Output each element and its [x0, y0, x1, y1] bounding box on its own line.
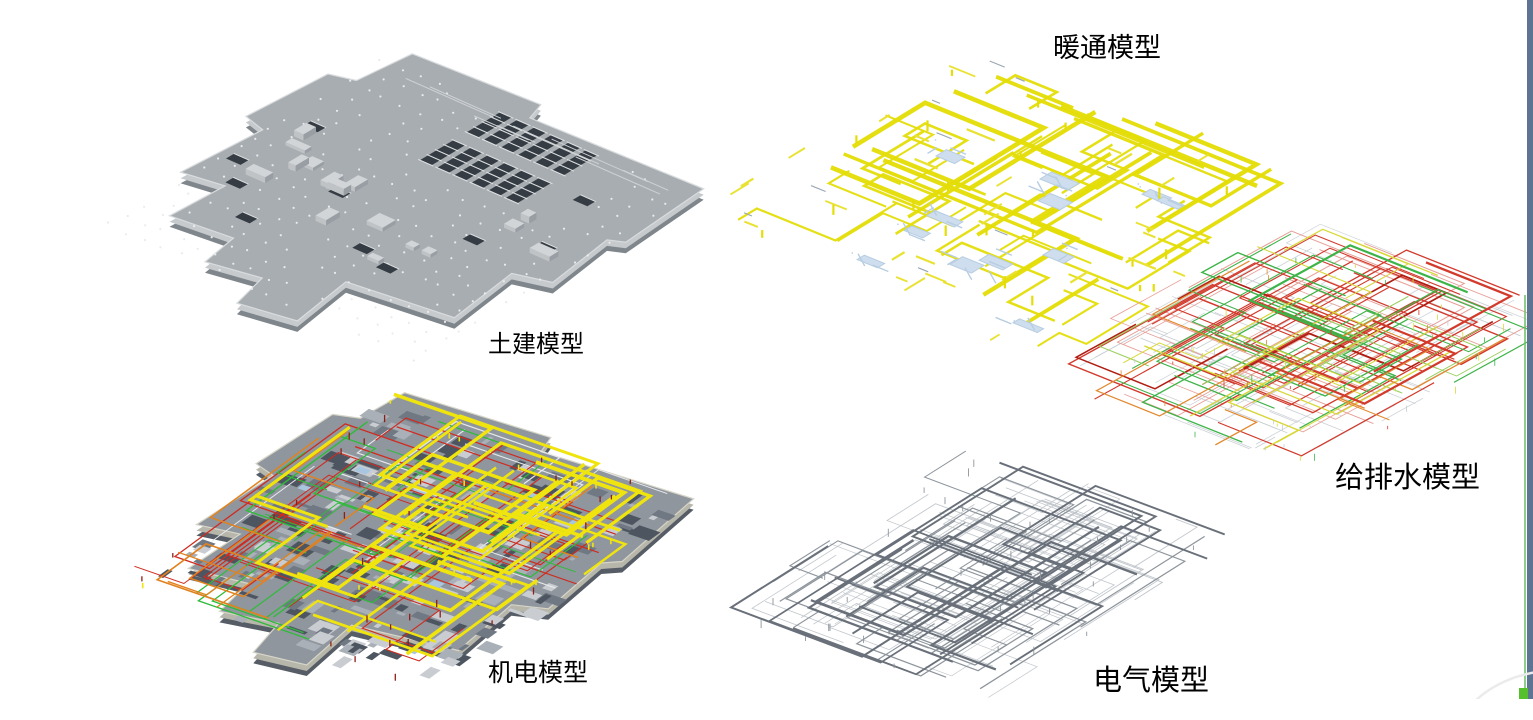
figure-mep-model — [90, 376, 740, 720]
edge-accent-line — [1524, 295, 1526, 699]
caption-electrical-model: 电气模型 — [1093, 667, 1209, 696]
caption-plumbing-model: 给排水模型 — [1335, 464, 1480, 493]
civil-model-3d-render — [70, 21, 720, 391]
caption-hvac-model: 暖通模型 — [1053, 35, 1161, 62]
window-edge-bar — [1527, 0, 1533, 699]
figure-civil-model — [70, 21, 720, 396]
caption-mep-model: 机电模型 — [488, 661, 588, 686]
faint-corner-arc — [1450, 640, 1533, 699]
mep-model-3d-render — [90, 376, 740, 715]
caption-civil-model: 土建模型 — [488, 333, 584, 357]
